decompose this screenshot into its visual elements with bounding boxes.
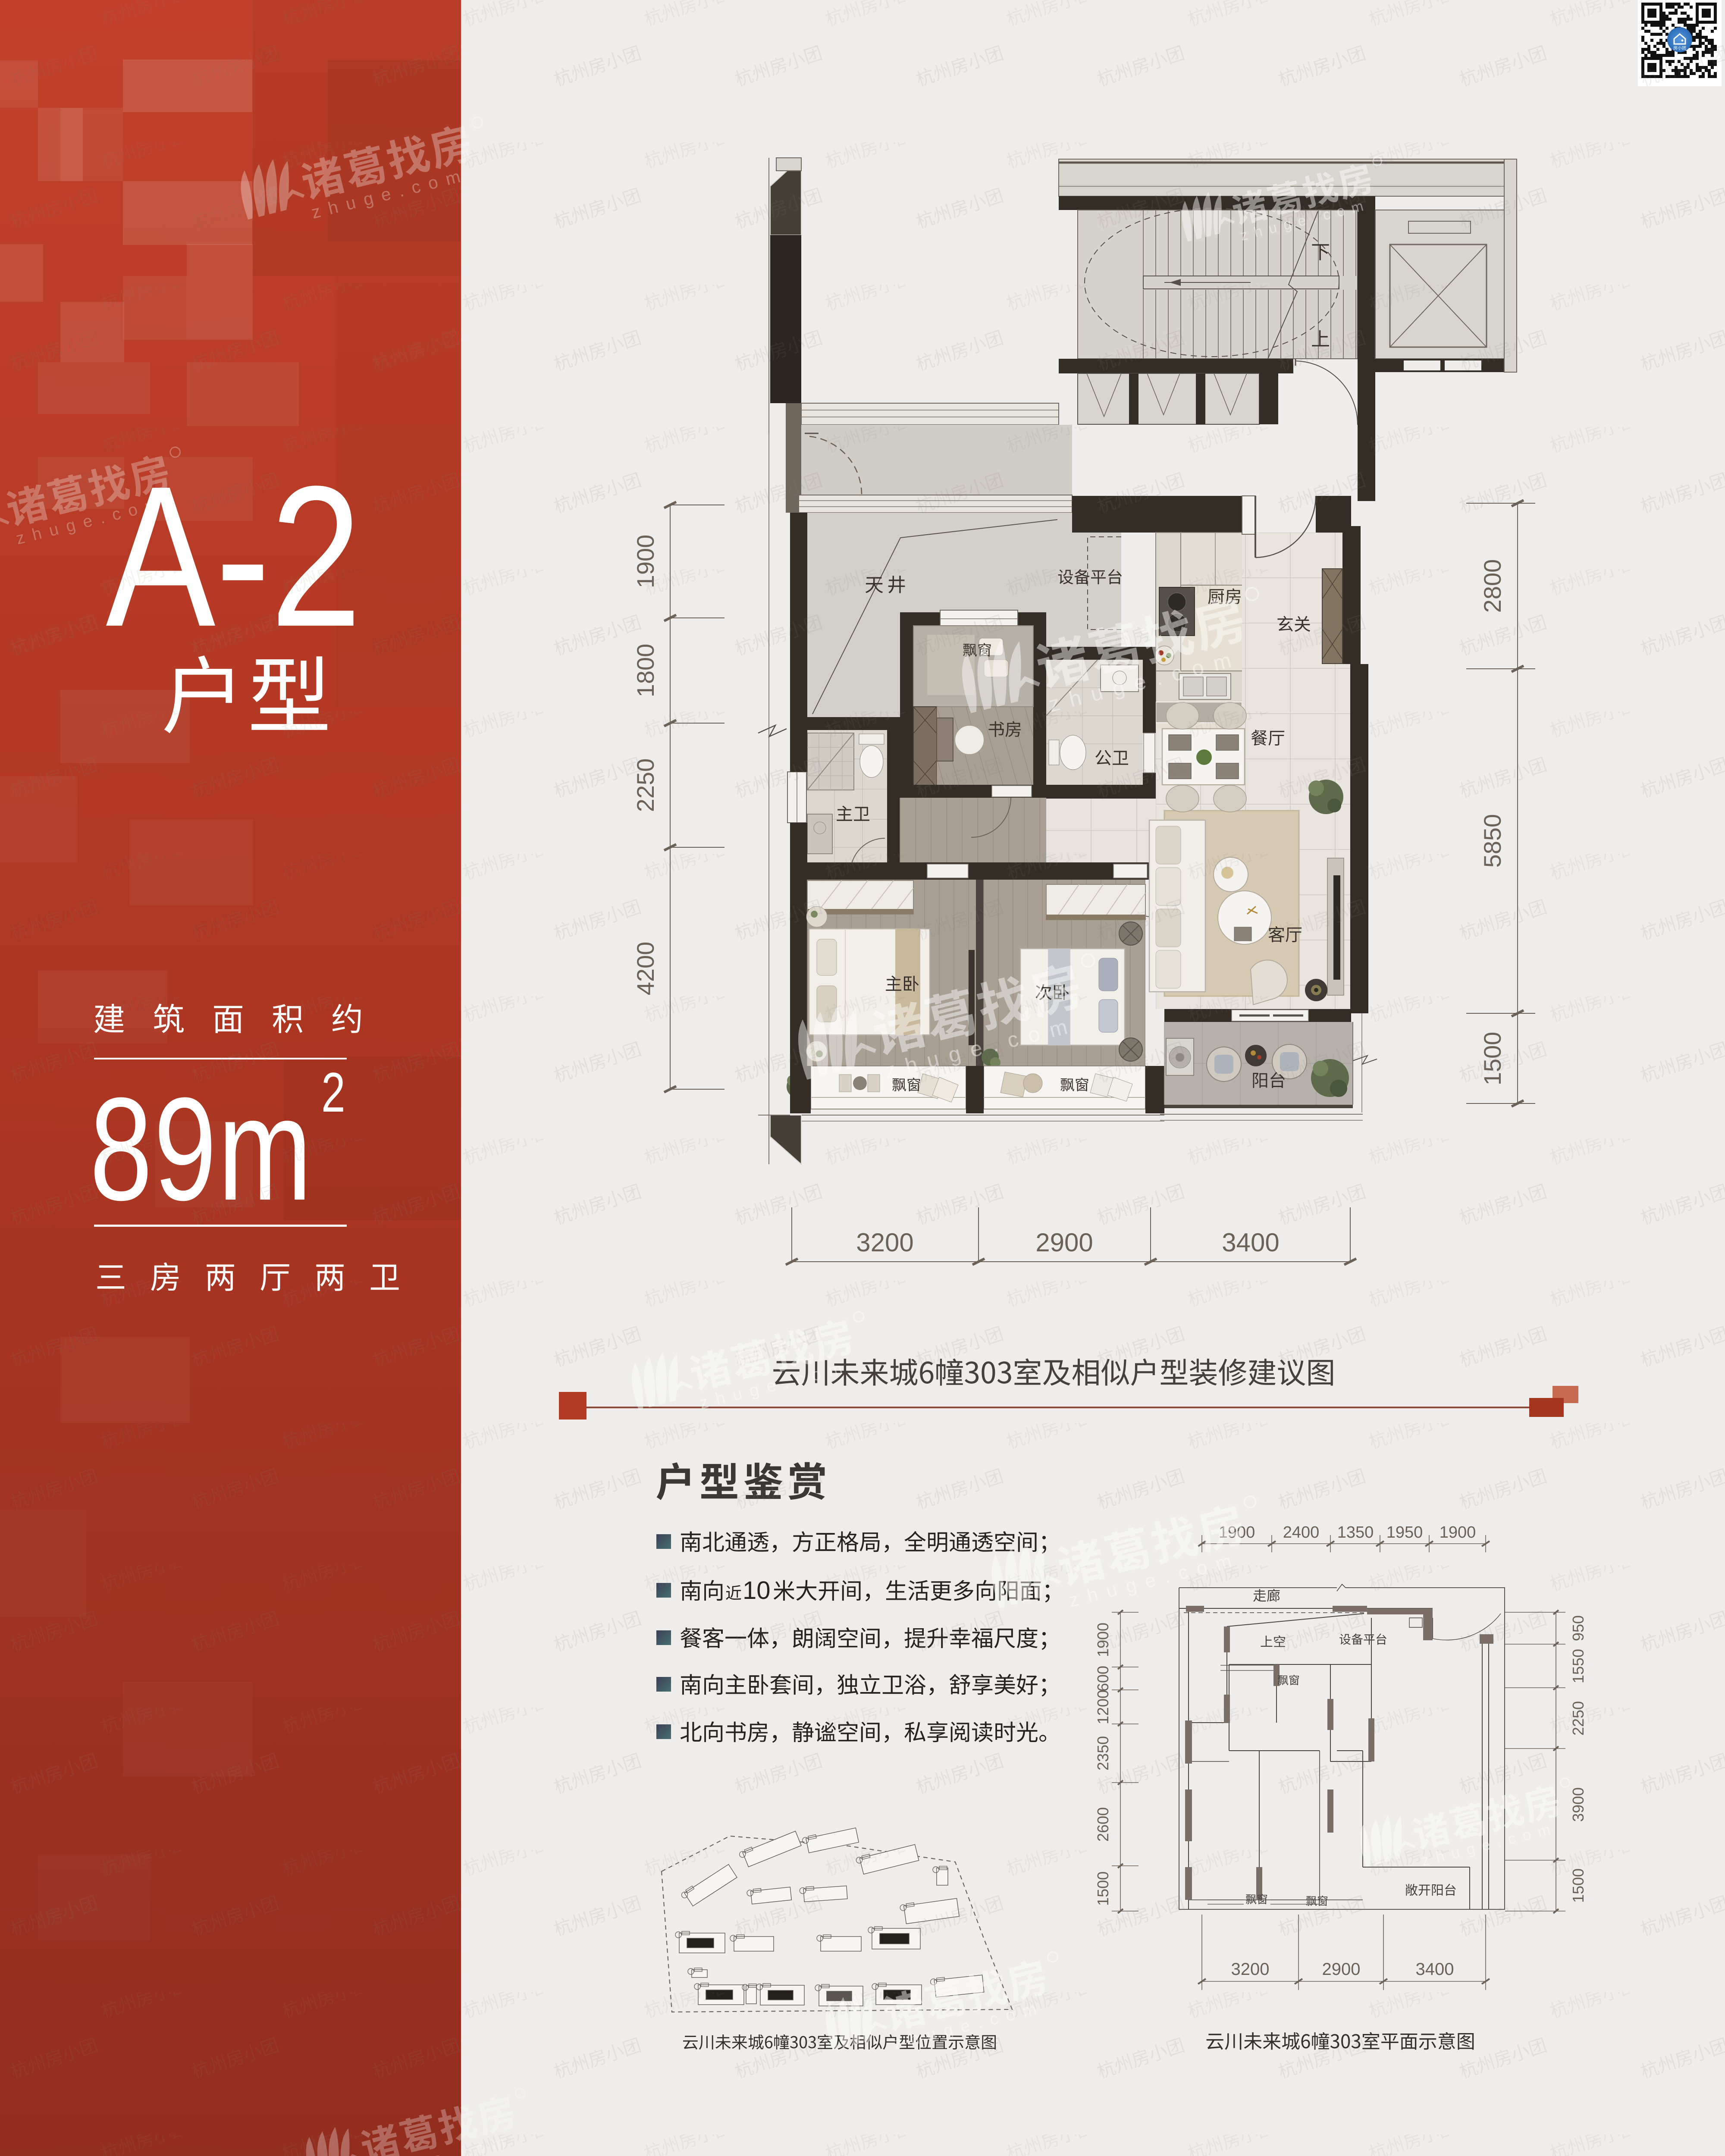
svg-text:2350: 2350 bbox=[1094, 1736, 1112, 1771]
svg-text:1200: 1200 bbox=[1094, 1690, 1112, 1724]
svg-text:5850: 5850 bbox=[1479, 814, 1506, 868]
svg-text:1900: 1900 bbox=[1440, 1523, 1476, 1542]
svg-text:3400: 3400 bbox=[1416, 1960, 1454, 1979]
svg-text:3400: 3400 bbox=[1222, 1228, 1279, 1257]
svg-text:1500: 1500 bbox=[1479, 1032, 1506, 1086]
svg-text:2900: 2900 bbox=[1035, 1228, 1093, 1257]
svg-text:1550: 1550 bbox=[1569, 1649, 1587, 1683]
svg-text:2250: 2250 bbox=[1569, 1701, 1587, 1736]
svg-text:2250: 2250 bbox=[632, 758, 659, 812]
svg-text:1500: 1500 bbox=[1569, 1868, 1587, 1903]
svg-text:3200: 3200 bbox=[856, 1228, 913, 1257]
svg-text:1950: 1950 bbox=[1386, 1523, 1423, 1542]
svg-text:600: 600 bbox=[1094, 1666, 1112, 1692]
svg-text:4200: 4200 bbox=[632, 942, 659, 996]
svg-text:3900: 3900 bbox=[1569, 1787, 1587, 1822]
svg-text:1500: 1500 bbox=[1094, 1871, 1112, 1906]
svg-text:2: 2 bbox=[321, 1061, 345, 1124]
svg-text:2900: 2900 bbox=[1322, 1960, 1361, 1979]
svg-text:89m: 89m bbox=[90, 1067, 314, 1231]
svg-text:1350: 1350 bbox=[1337, 1523, 1374, 1542]
svg-text:2600: 2600 bbox=[1094, 1807, 1112, 1842]
svg-text:2400: 2400 bbox=[1283, 1523, 1320, 1542]
svg-text:2800: 2800 bbox=[1479, 559, 1506, 613]
svg-text:3200: 3200 bbox=[1231, 1960, 1270, 1979]
svg-text:950: 950 bbox=[1569, 1615, 1587, 1641]
svg-text:1900: 1900 bbox=[1094, 1623, 1112, 1657]
svg-text:1800: 1800 bbox=[632, 644, 659, 698]
svg-text:1900: 1900 bbox=[632, 535, 659, 589]
svg-text:10: 10 bbox=[743, 1576, 771, 1604]
